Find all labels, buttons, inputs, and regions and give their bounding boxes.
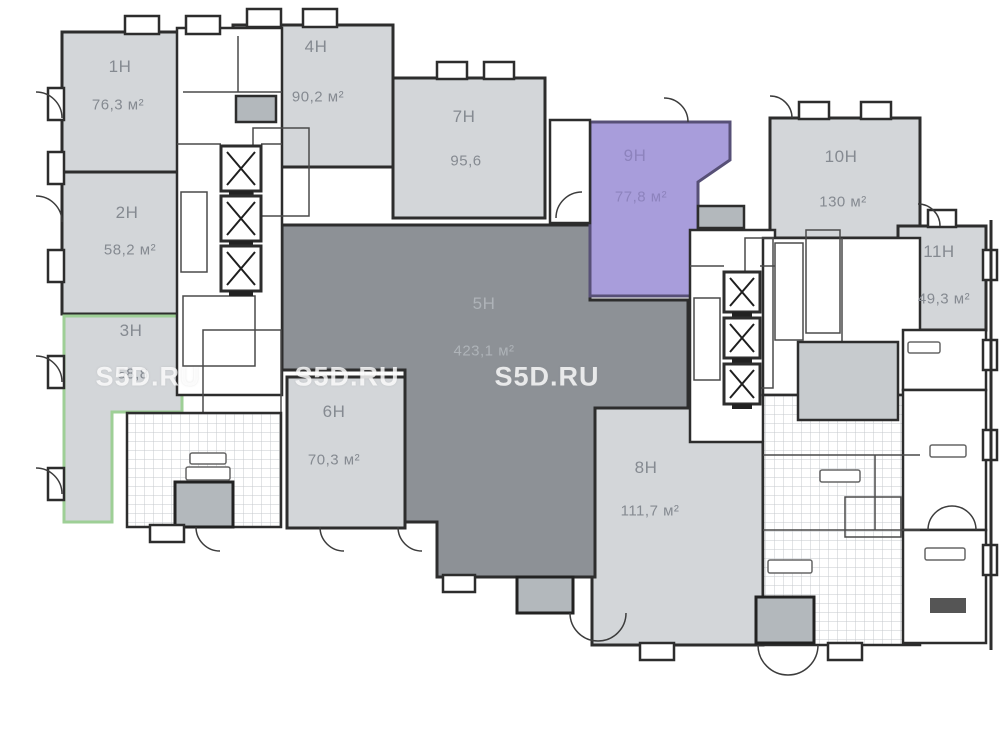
window-tab (437, 62, 467, 79)
entrance-door-arc (320, 527, 344, 551)
room-7h[interactable] (393, 78, 545, 218)
floor-plan-drawing (0, 0, 1000, 750)
utility-room-right (798, 342, 898, 420)
window-tab (928, 210, 956, 227)
corridor-center (550, 120, 590, 223)
utility-block-core-left (236, 96, 276, 122)
fixture (768, 560, 812, 573)
elevator-shaft-3 (221, 246, 261, 296)
window-tab (186, 16, 220, 34)
elevator-shaft-2 (221, 196, 261, 246)
elevator-shaft-5 (724, 318, 760, 363)
elevator-shaft-4 (724, 272, 760, 317)
window-tab (443, 575, 475, 592)
fixture (908, 342, 940, 353)
window-tab (828, 643, 862, 660)
door-arc-9h (664, 98, 688, 122)
door-arc (36, 196, 62, 222)
fixture-dark (930, 598, 966, 613)
entrance-door-arc (788, 645, 818, 675)
window-tab (484, 62, 514, 79)
room-1h[interactable] (62, 32, 182, 172)
room-right-a (903, 330, 986, 390)
fixture (925, 548, 965, 560)
room-right-c (903, 530, 986, 643)
elevator-shaft-1 (221, 146, 261, 196)
entrance-door-arc (196, 527, 220, 551)
room-6h[interactable] (287, 377, 405, 528)
window-tab (247, 9, 281, 27)
elevator-shaft-6 (724, 364, 760, 409)
window-tab (640, 643, 674, 660)
window-tab (861, 102, 891, 119)
floor-plan: 1Н76,3 м²2Н58,2 м²3Н58,84Н90,2 м²5Н423,1… (0, 0, 1000, 750)
window-tab (799, 102, 829, 119)
window-tab (150, 525, 184, 542)
room-2h[interactable] (62, 172, 182, 314)
fixture (930, 445, 966, 457)
utility-block-core-right (698, 206, 744, 228)
fixture (820, 470, 860, 482)
entrance-vestibule-center (517, 577, 573, 613)
window-tab (303, 9, 337, 27)
entrance-door-arc (758, 645, 788, 675)
entrance-vestibule-left (175, 482, 233, 527)
room-8h[interactable] (592, 408, 763, 645)
fixture (186, 467, 230, 480)
room-10h[interactable] (770, 118, 920, 238)
room-right-b (903, 390, 986, 530)
window-tab (125, 16, 159, 34)
entrance-vestibule-right (756, 597, 814, 643)
entrance-door-arc (398, 527, 422, 551)
window-tab (48, 250, 64, 282)
door-arc-10h (770, 96, 792, 118)
window-tab (48, 152, 64, 184)
fixture (190, 453, 226, 464)
